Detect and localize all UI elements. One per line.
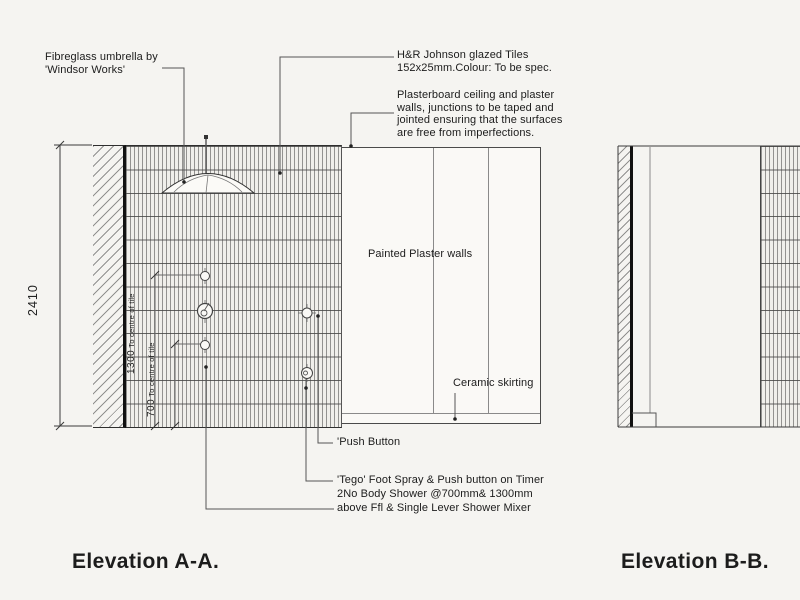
ceramic-skirting-line	[342, 413, 540, 414]
tego-foot-spray-label: 'Tego' Foot Spray & Push button on Timer	[337, 474, 544, 487]
dimension-value: 1300	[126, 350, 137, 374]
body-shower-annotation: 2No Body Shower @700mm& 1300mm above Ffl…	[337, 488, 533, 515]
elevation-b-title: Elevation B-B.	[621, 550, 769, 574]
plaster-panel-joint-line	[433, 148, 434, 414]
push-button-label: 'Push Button	[337, 436, 400, 449]
elevation-b-hatched-wall-section	[618, 146, 633, 427]
elevation-b-tiled-wall	[760, 146, 800, 427]
architectural-drawing-canvas: Fibreglass umbrella by 'Windsor Works' H…	[0, 0, 800, 600]
dimension-suffix: To centre of tile	[147, 342, 156, 398]
annotation-line: 2No Body Shower @700mm& 1300mm	[337, 488, 533, 502]
annotation-line: walls, junctions to be taped and	[397, 102, 562, 115]
annotation-line: jointed ensuring that the surfaces	[397, 114, 562, 127]
annotation-line: 'Windsor Works'	[45, 64, 158, 77]
ceramic-skirting-label: Ceramic skirting	[453, 377, 533, 390]
annotation-line: Fibreglass umbrella by	[45, 51, 158, 64]
annotation-line: above Ffl & Single Lever Shower Mixer	[337, 502, 533, 516]
dimension-1300-label: 1300 To centre of tile	[121, 293, 139, 374]
elevation-a-title: Elevation A-A.	[72, 550, 219, 574]
dimension-line-2410	[54, 141, 92, 430]
glazed-tiles-annotation: H&R Johnson glazed Tiles 152x25mm.Colour…	[397, 49, 552, 74]
umbrella-annotation: Fibreglass umbrella by 'Windsor Works'	[45, 51, 158, 76]
dimension-2410-label: 2410	[26, 284, 40, 316]
dimension-value: 700	[146, 399, 157, 417]
plaster-panel-joint-line	[488, 148, 489, 414]
elevation-a-hatched-wall-section	[93, 145, 126, 428]
annotation-line: Plasterboard ceiling and plaster	[397, 89, 562, 102]
annotation-line: H&R Johnson glazed Tiles	[397, 49, 552, 62]
annotation-line: 152x25mm.Colour: To be spec.	[397, 62, 552, 75]
annotation-line: are free from imperfections.	[397, 127, 562, 140]
plasterboard-annotation: Plasterboard ceiling and plaster walls, …	[397, 89, 562, 139]
dimension-suffix: To centre of tile	[127, 293, 136, 349]
painted-plaster-walls-label: Painted Plaster walls	[368, 248, 472, 261]
dimension-700-label: 700 To centre of tile	[141, 342, 159, 417]
